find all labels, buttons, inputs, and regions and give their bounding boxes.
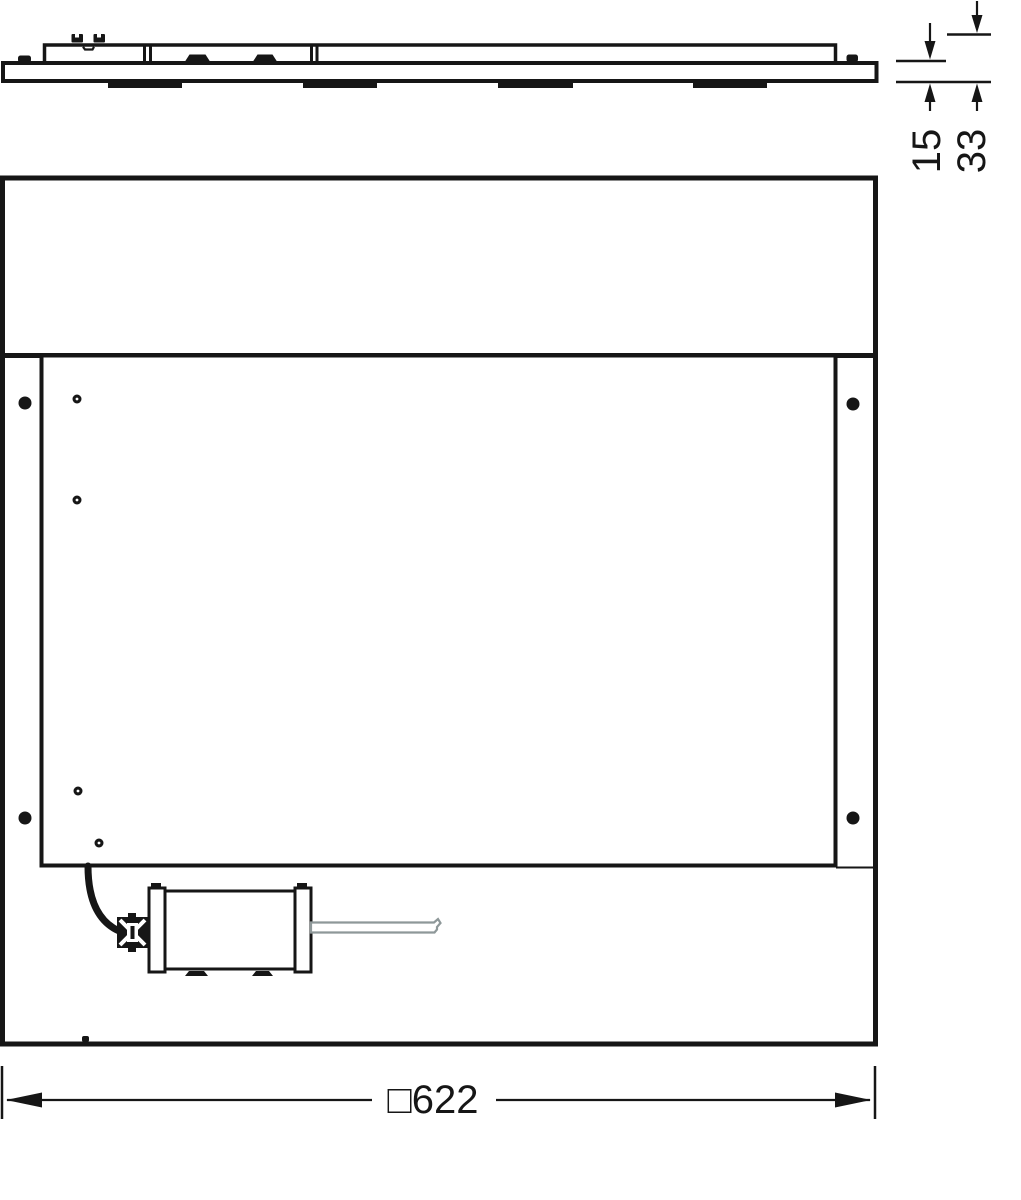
back-panel	[42, 356, 836, 866]
rear-view	[3, 178, 876, 1044]
corner-hole	[847, 812, 860, 825]
pilot-hole-center	[76, 398, 79, 401]
technical-drawing: 15 33	[0, 0, 1021, 1200]
corner-hole	[19, 812, 32, 825]
corner-clip-bump	[847, 55, 859, 63]
total-height-label: 33	[950, 129, 994, 174]
driver-end-cap	[295, 888, 311, 972]
corner-hole	[19, 397, 32, 410]
gasket-pad	[498, 81, 573, 88]
clip-notch	[75, 34, 79, 38]
side-view	[3, 34, 877, 88]
gasket-pad	[303, 81, 377, 88]
dim-arrowhead-right	[835, 1093, 871, 1108]
luminaire-dimensional-drawing: 15 33	[0, 0, 1021, 1200]
clip-notch	[97, 34, 101, 38]
side-panel-plate	[3, 63, 877, 81]
corner-hole	[847, 398, 860, 411]
dim-arrowhead-down	[972, 15, 983, 33]
dim-arrowhead-down	[925, 41, 936, 60]
height-dimensions: 15 33	[896, 1, 994, 173]
corner-clip-bump	[18, 56, 31, 63]
gasket-pad	[108, 81, 182, 88]
dim-arrowhead-up	[925, 84, 936, 103]
pilot-hole-center	[77, 790, 80, 793]
dim-arrowhead-up	[972, 84, 983, 103]
driver-body	[165, 891, 295, 969]
pilot-hole-center	[76, 499, 79, 502]
side-back-tray	[45, 45, 836, 63]
gland-pin	[131, 926, 135, 939]
width-dimension: □622	[2, 1066, 875, 1122]
pilot-hole-center	[98, 842, 101, 845]
width-label: □622	[388, 1078, 479, 1122]
panel-height-label: 15	[905, 129, 949, 174]
gasket-pad	[693, 81, 767, 88]
driver-end-cap	[149, 888, 165, 972]
cable-gland	[117, 913, 148, 952]
driver-foot	[185, 971, 208, 976]
led-driver	[149, 883, 311, 976]
bottom-edge-stud	[82, 1036, 89, 1042]
dim-arrowhead-left	[6, 1093, 42, 1108]
